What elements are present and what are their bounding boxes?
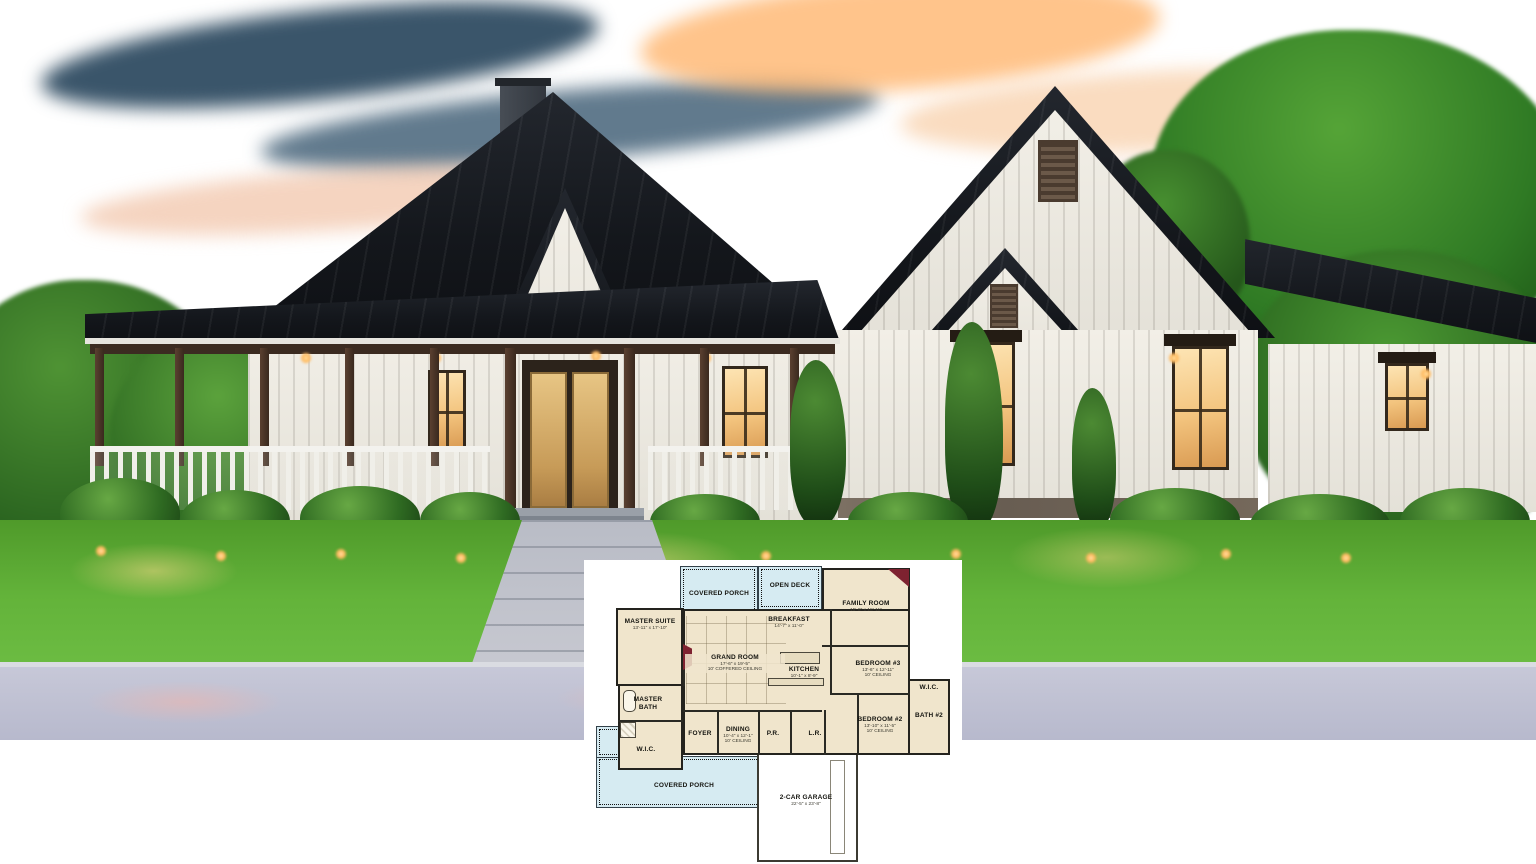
room-dims: 13'-11" x 17'-10" [617,626,683,632]
room-dims: 10'-1" x 8'-9" [774,674,834,680]
room-pr: P.R. [760,730,786,738]
room-name: W.I.C. [908,684,950,692]
room-ceiling: 10' CEILING [716,739,760,745]
room-name: 2-CAR GARAGE [761,794,851,802]
room-dims: 22'-5" x 23'-8" [761,802,851,808]
room-ceiling: 10' CEILING [842,673,914,679]
room-wic-left: W.I.C. [624,746,668,754]
room-name: KITCHEN [774,666,834,674]
room-lr: L.R. [802,730,828,738]
room-dining: DINING 10'-4" x 12'-1" 10' CEILING [716,726,760,745]
room-ceiling: 10' COFFERED CEILING [685,667,785,673]
garden-light [1085,552,1097,564]
garden-light [335,548,347,560]
gable-vent [1038,140,1078,202]
plan-wall [830,693,910,695]
plan-wall [830,609,832,695]
room-grand-room: GRAND ROOM 17'-6" x 19'-5" 10' COFFERED … [685,654,785,673]
window-header [1164,334,1236,346]
porch-light [1420,368,1432,380]
chimney-cap [495,78,551,86]
garden-light [215,550,227,562]
porch-beam [90,344,835,354]
room-bedroom-2: BEDROOM #2 13'-10" x 11'-5" 10' CEILING [848,716,912,735]
room-name: L.R. [802,730,828,738]
room-master-suite: MASTER SUITE 13'-11" x 17'-10" [617,618,683,631]
room-name: BATH #2 [908,712,950,720]
room-name: P.R. [760,730,786,738]
plan-shower [620,722,636,738]
window-right-2 [1172,346,1229,470]
garden-light [95,545,107,557]
garden-light [455,552,467,564]
window-porch-right [722,366,768,458]
porch-post [505,348,516,508]
garden-light [950,548,962,560]
garden-light [1220,548,1232,560]
room-breakfast: BREAKFAST 14'-7" x 11'-0" [758,616,820,629]
room-covered-porch-top: COVERED PORCH [680,590,758,598]
page: COVERED PORCH OPEN DECK FAMILY ROOM 15'-… [0,0,1536,864]
room-family-room: FAMILY ROOM 15'-8" x 18'-11" [822,600,910,613]
room-name: FAMILY ROOM [822,600,910,608]
plan-wall [683,710,822,712]
garden-light [1340,552,1352,564]
room-wic-right: W.I.C. [908,684,950,692]
gable-small-vent [990,284,1018,328]
room-dims: 15'-8" x 18'-11" [822,608,910,614]
room-name: FOYER [683,730,717,738]
plan-kitchen-island [780,652,820,664]
room-bath-2: BATH #2 [908,712,950,720]
room-name: W.I.C. [624,746,668,754]
room-name: MASTER BATH [628,696,668,711]
room-name: COVERED PORCH [680,590,758,598]
room-open-deck: OPEN DECK [758,582,822,590]
room-bedroom-3: BEDROOM #3 13'-6" x 12'-11" 10' CEILING [842,660,914,679]
plan-wall [790,710,792,755]
floor-plan-inset: COVERED PORCH OPEN DECK FAMILY ROOM 15'-… [584,560,962,864]
plan-wall [822,645,910,647]
room-covered-porch-bottom: COVERED PORCH [596,782,772,790]
room-name: COVERED PORCH [596,782,772,790]
porch-light [1168,352,1180,364]
room-dims: 14'-7" x 11'-0" [758,624,820,630]
room-name: OPEN DECK [758,582,822,590]
room-garage: 2-CAR GARAGE 22'-5" x 23'-8" [761,794,851,807]
room-kitchen: KITCHEN 10'-1" x 8'-9" [774,666,834,679]
room-name: BEDROOM #2 [848,716,912,724]
room-ceiling: 10' CEILING [848,729,912,735]
window-header [1378,352,1436,363]
front-door [572,372,609,508]
room-name: BEDROOM #3 [842,660,914,668]
room-foyer: FOYER [683,730,717,738]
room-name: MASTER SUITE [617,618,683,626]
room-name: DINING [716,726,760,734]
room-master-bath: MASTER BATH [628,696,668,711]
porch-post [624,348,635,508]
room-name: BREAKFAST [758,616,820,624]
porch-light [300,352,312,364]
front-door [530,372,567,508]
room-name: GRAND ROOM [685,654,785,662]
